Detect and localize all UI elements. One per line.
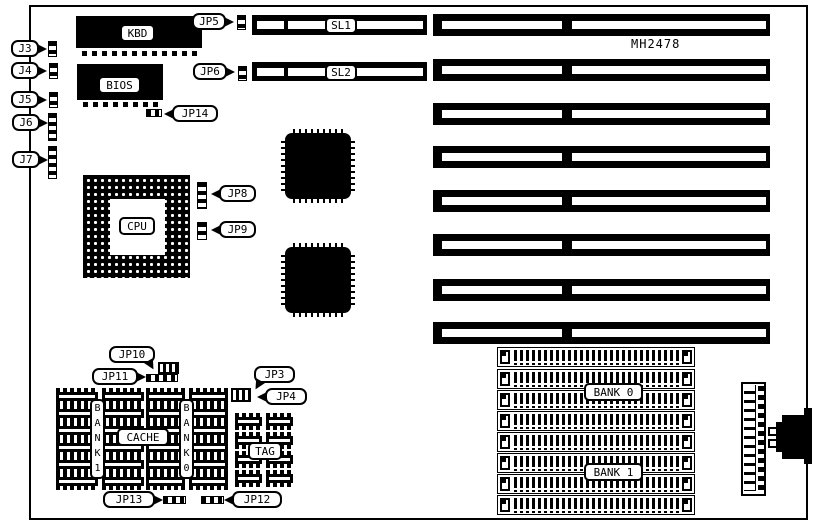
jp8-jumper [197,182,207,209]
jp3-jp4-jumper [231,388,251,402]
isa-slot-1 [433,14,770,36]
simm-socket-5 [497,432,695,452]
bios-socket-dashes [78,102,162,107]
jp13-callout: JP13 [103,491,155,508]
j3-jumper [48,41,57,57]
isa-slot-5 [433,190,770,212]
jp13-jumper [163,496,186,504]
jp8-callout: JP8 [219,185,256,202]
keyboard-din-tab-2 [768,439,778,448]
j4-jumper [49,63,58,79]
isa-slot-8 [433,322,770,344]
jp9-callout: JP9 [219,221,256,238]
chipset-qfp-1 [285,133,351,199]
simm-socket-4 [497,411,695,431]
keyboard-din-tab-1 [768,427,778,436]
kbd-socket-dashes [77,51,201,56]
jp10-callout: JP10 [109,346,155,363]
isa-slot-6 [433,234,770,256]
jp11-callout: JP11 [92,368,138,385]
simm-bank1-label: BANK 1 [584,463,643,481]
jp12-jumper [201,496,224,504]
motherboard-diagram: MH2478 KBD BIOS J3 J4 J5 J6 J7 JP5 JP6 J… [0,0,814,527]
sl1-slot-label: SL1 [325,17,357,34]
j3-callout: J3 [11,40,39,57]
jp4-callout: JP4 [265,388,307,405]
isa-slot-4 [433,146,770,168]
isa-slot-2 [433,59,770,81]
power-connector [741,382,766,496]
simm-socket-8 [497,495,695,515]
keyboard-din-connector-body [782,415,806,459]
j6-callout: J6 [12,114,40,131]
board-id-label: MH2478 [631,37,680,51]
bios-chip-label: BIOS [98,76,141,94]
jp11-jumper [146,374,178,382]
kbd-chip-label: KBD [120,24,155,42]
j7-callout: J7 [12,151,40,168]
cpu-label: CPU [119,217,155,235]
bank1-vertical-label: B A N K 1 [90,399,105,479]
jp3-callout: JP3 [254,366,295,383]
jp14-callout: JP14 [172,105,218,122]
sl2-slot-label: SL2 [325,64,357,81]
cache-label: CACHE [117,428,169,446]
j7-jumper [48,146,57,179]
jp6-callout: JP6 [193,63,227,80]
isa-slot-7 [433,279,770,301]
jp5-jumper [237,15,246,30]
j5-callout: J5 [11,91,39,108]
jp5-callout: JP5 [192,13,226,30]
tag-label: TAG [248,442,282,460]
jp10-jumper [158,362,179,374]
simm-socket-1 [497,347,695,367]
j6-jumper [48,113,57,141]
isa-slot-3 [433,103,770,125]
j5-jumper [49,92,58,108]
chipset-qfp-2 [285,247,351,313]
bank0-vertical-label: B A N K 0 [179,399,194,479]
jp6-jumper [238,66,247,81]
jp12-callout: JP12 [232,491,282,508]
jp14-jumper [146,109,162,117]
power-connector-cells [744,385,756,491]
power-connector-pins [758,386,764,490]
jp9-jumper [197,222,207,240]
simm-bank0-label: BANK 0 [584,383,643,401]
j4-callout: J4 [11,62,39,79]
